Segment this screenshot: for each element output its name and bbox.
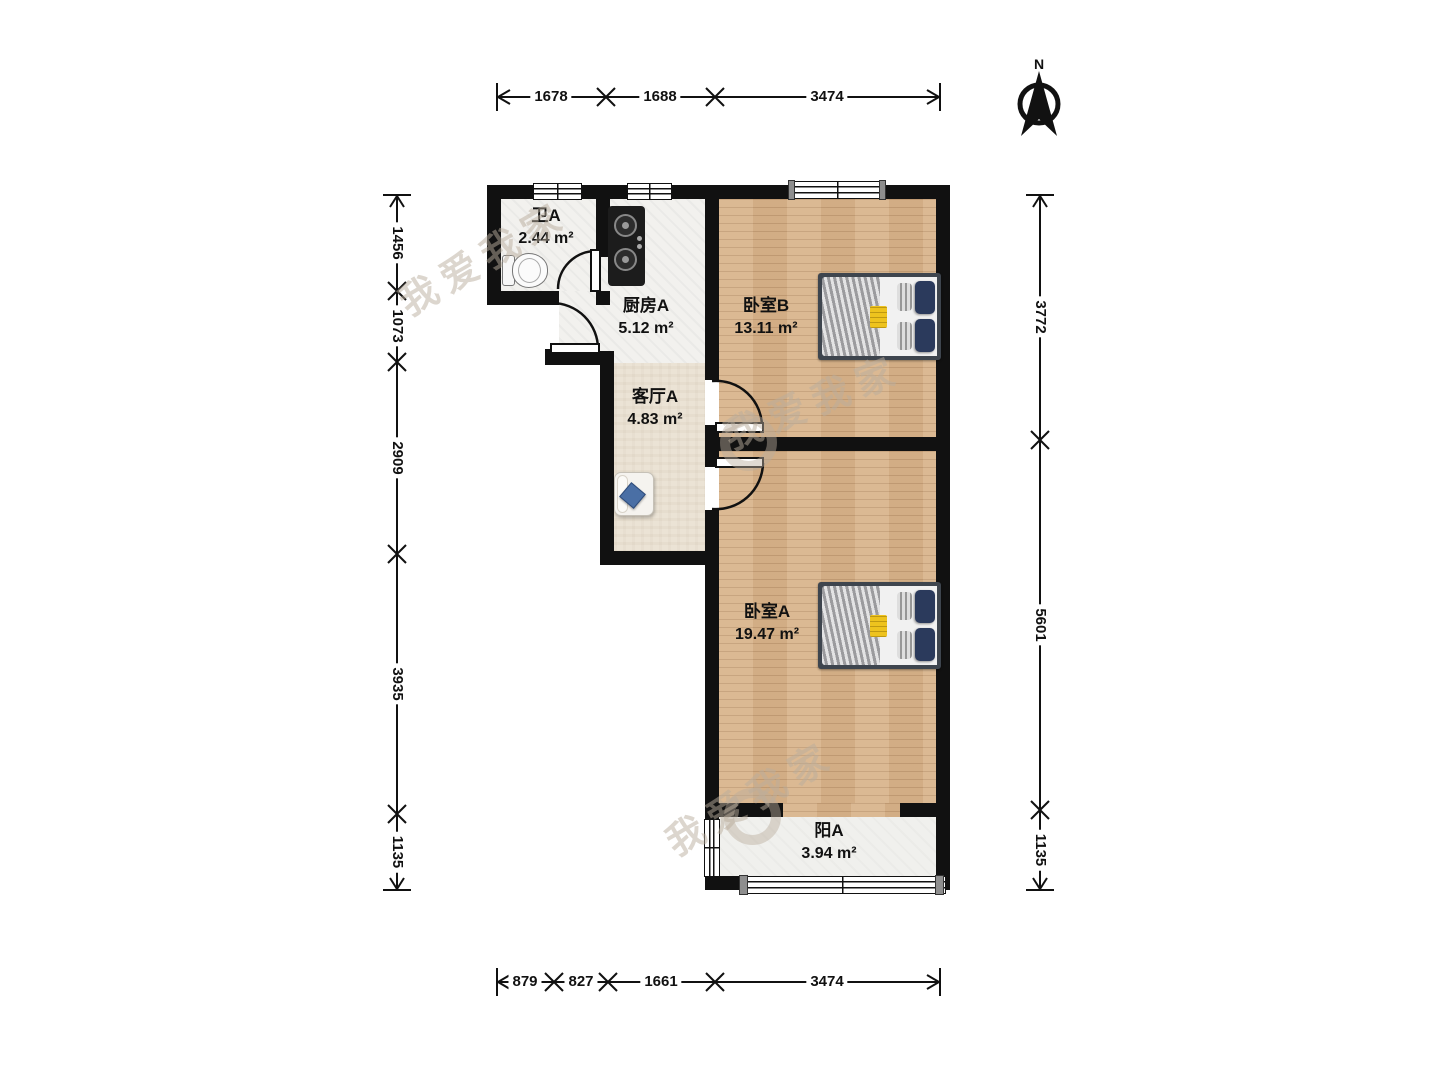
window-balcony-front xyxy=(739,876,946,894)
toilet-icon xyxy=(502,253,546,288)
stove-burner xyxy=(614,248,637,271)
dim-label-left-1: 1456 xyxy=(388,222,406,263)
dim-label-right-2: 5601 xyxy=(1031,604,1049,645)
bed-pillow xyxy=(897,322,912,350)
wall-center-vertical-lower xyxy=(705,510,719,817)
wall-living-left xyxy=(600,351,614,565)
bed-pillow-navy xyxy=(915,319,935,352)
room-label-living: 客厅A 4.83 m² xyxy=(627,385,682,431)
dim-label-left-3: 2909 xyxy=(388,437,406,478)
room-area: 5.12 m² xyxy=(618,317,673,340)
stove-knob xyxy=(637,236,642,241)
bed-tray xyxy=(870,306,887,328)
bed-tray xyxy=(870,615,887,637)
dim-label-top-1: 1678 xyxy=(530,88,571,106)
dim-label-bottom-4: 3474 xyxy=(806,973,847,991)
room-label-bedroom-a: 卧室A 19.47 m² xyxy=(735,600,799,646)
room-name: 厨房A xyxy=(618,294,673,317)
wall-kitchen-left-upper xyxy=(545,291,559,305)
dim-label-bottom-3: 1661 xyxy=(640,973,681,991)
dim-label-left-2: 1073 xyxy=(388,305,406,346)
gas-stove-icon xyxy=(608,206,645,286)
dim-label-right-3: 1135 xyxy=(1031,830,1049,871)
dim-label-left-4: 3935 xyxy=(388,663,406,704)
wall-bathroom-door-stub xyxy=(596,291,610,305)
window-cap xyxy=(739,875,748,895)
room-area: 13.11 m² xyxy=(734,317,797,340)
sofa-icon xyxy=(614,472,654,516)
window-cap xyxy=(935,875,944,895)
room-area: 19.47 m² xyxy=(735,623,799,646)
window-cap xyxy=(788,180,795,200)
stove-burner xyxy=(614,214,637,237)
room-name: 客厅A xyxy=(627,385,682,408)
room-area: 2.44 m² xyxy=(518,227,573,250)
room-name: 卧室A xyxy=(735,600,799,623)
floorplan-canvas: 1678 1688 3474 879 827 1661 3474 1456 10… xyxy=(0,0,1440,1080)
window-balcony-side xyxy=(704,819,720,877)
room-name: 卫A xyxy=(518,204,573,227)
stove-knob xyxy=(637,244,642,249)
wall-living-bottom xyxy=(600,551,719,565)
compass-north-label: N xyxy=(1034,56,1044,72)
bed-pillow-navy xyxy=(915,590,935,623)
floor-balcony-passage xyxy=(783,803,900,817)
bed-pillow-navy xyxy=(915,281,935,314)
room-label-balcony: 阳A 3.94 m² xyxy=(801,819,856,865)
room-area: 4.83 m² xyxy=(627,408,682,431)
dim-label-bottom-1: 879 xyxy=(508,973,541,991)
wall-bathroom-left xyxy=(487,185,501,305)
wall-bedroom-a-bottom-right xyxy=(900,803,950,817)
window-cap xyxy=(879,180,886,200)
window-bathroom xyxy=(533,183,582,200)
bed-pillow xyxy=(897,631,912,659)
window-kitchen xyxy=(627,183,672,200)
room-label-kitchen: 厨房A 5.12 m² xyxy=(618,294,673,340)
bed-pillow xyxy=(897,283,912,311)
window-bedroom-b xyxy=(791,181,884,199)
bed-pillow xyxy=(897,592,912,620)
wall-bedroom-divider xyxy=(705,437,950,451)
toilet-bowl-inner xyxy=(518,258,541,283)
dim-label-top-2: 1688 xyxy=(639,88,680,106)
dim-label-right-1: 3772 xyxy=(1031,296,1049,337)
compass-icon xyxy=(1020,71,1058,136)
dim-label-bottom-2: 827 xyxy=(564,973,597,991)
dim-label-top-3: 3474 xyxy=(806,88,847,106)
dim-label-left-5: 1135 xyxy=(388,832,406,873)
wall-center-vertical-upper xyxy=(705,185,719,380)
bed-bedroom-b xyxy=(818,273,941,360)
room-label-bedroom-b: 卧室B 13.11 m² xyxy=(734,294,797,340)
room-label-bathroom: 卫A 2.44 m² xyxy=(518,204,573,250)
room-name: 阳A xyxy=(801,819,856,842)
bed-bedroom-a xyxy=(818,582,941,669)
bed-pillow-navy xyxy=(915,628,935,661)
wall-bedroom-a-bottom-left xyxy=(705,803,783,817)
room-name: 卧室B xyxy=(734,294,797,317)
room-area: 3.94 m² xyxy=(801,842,856,865)
